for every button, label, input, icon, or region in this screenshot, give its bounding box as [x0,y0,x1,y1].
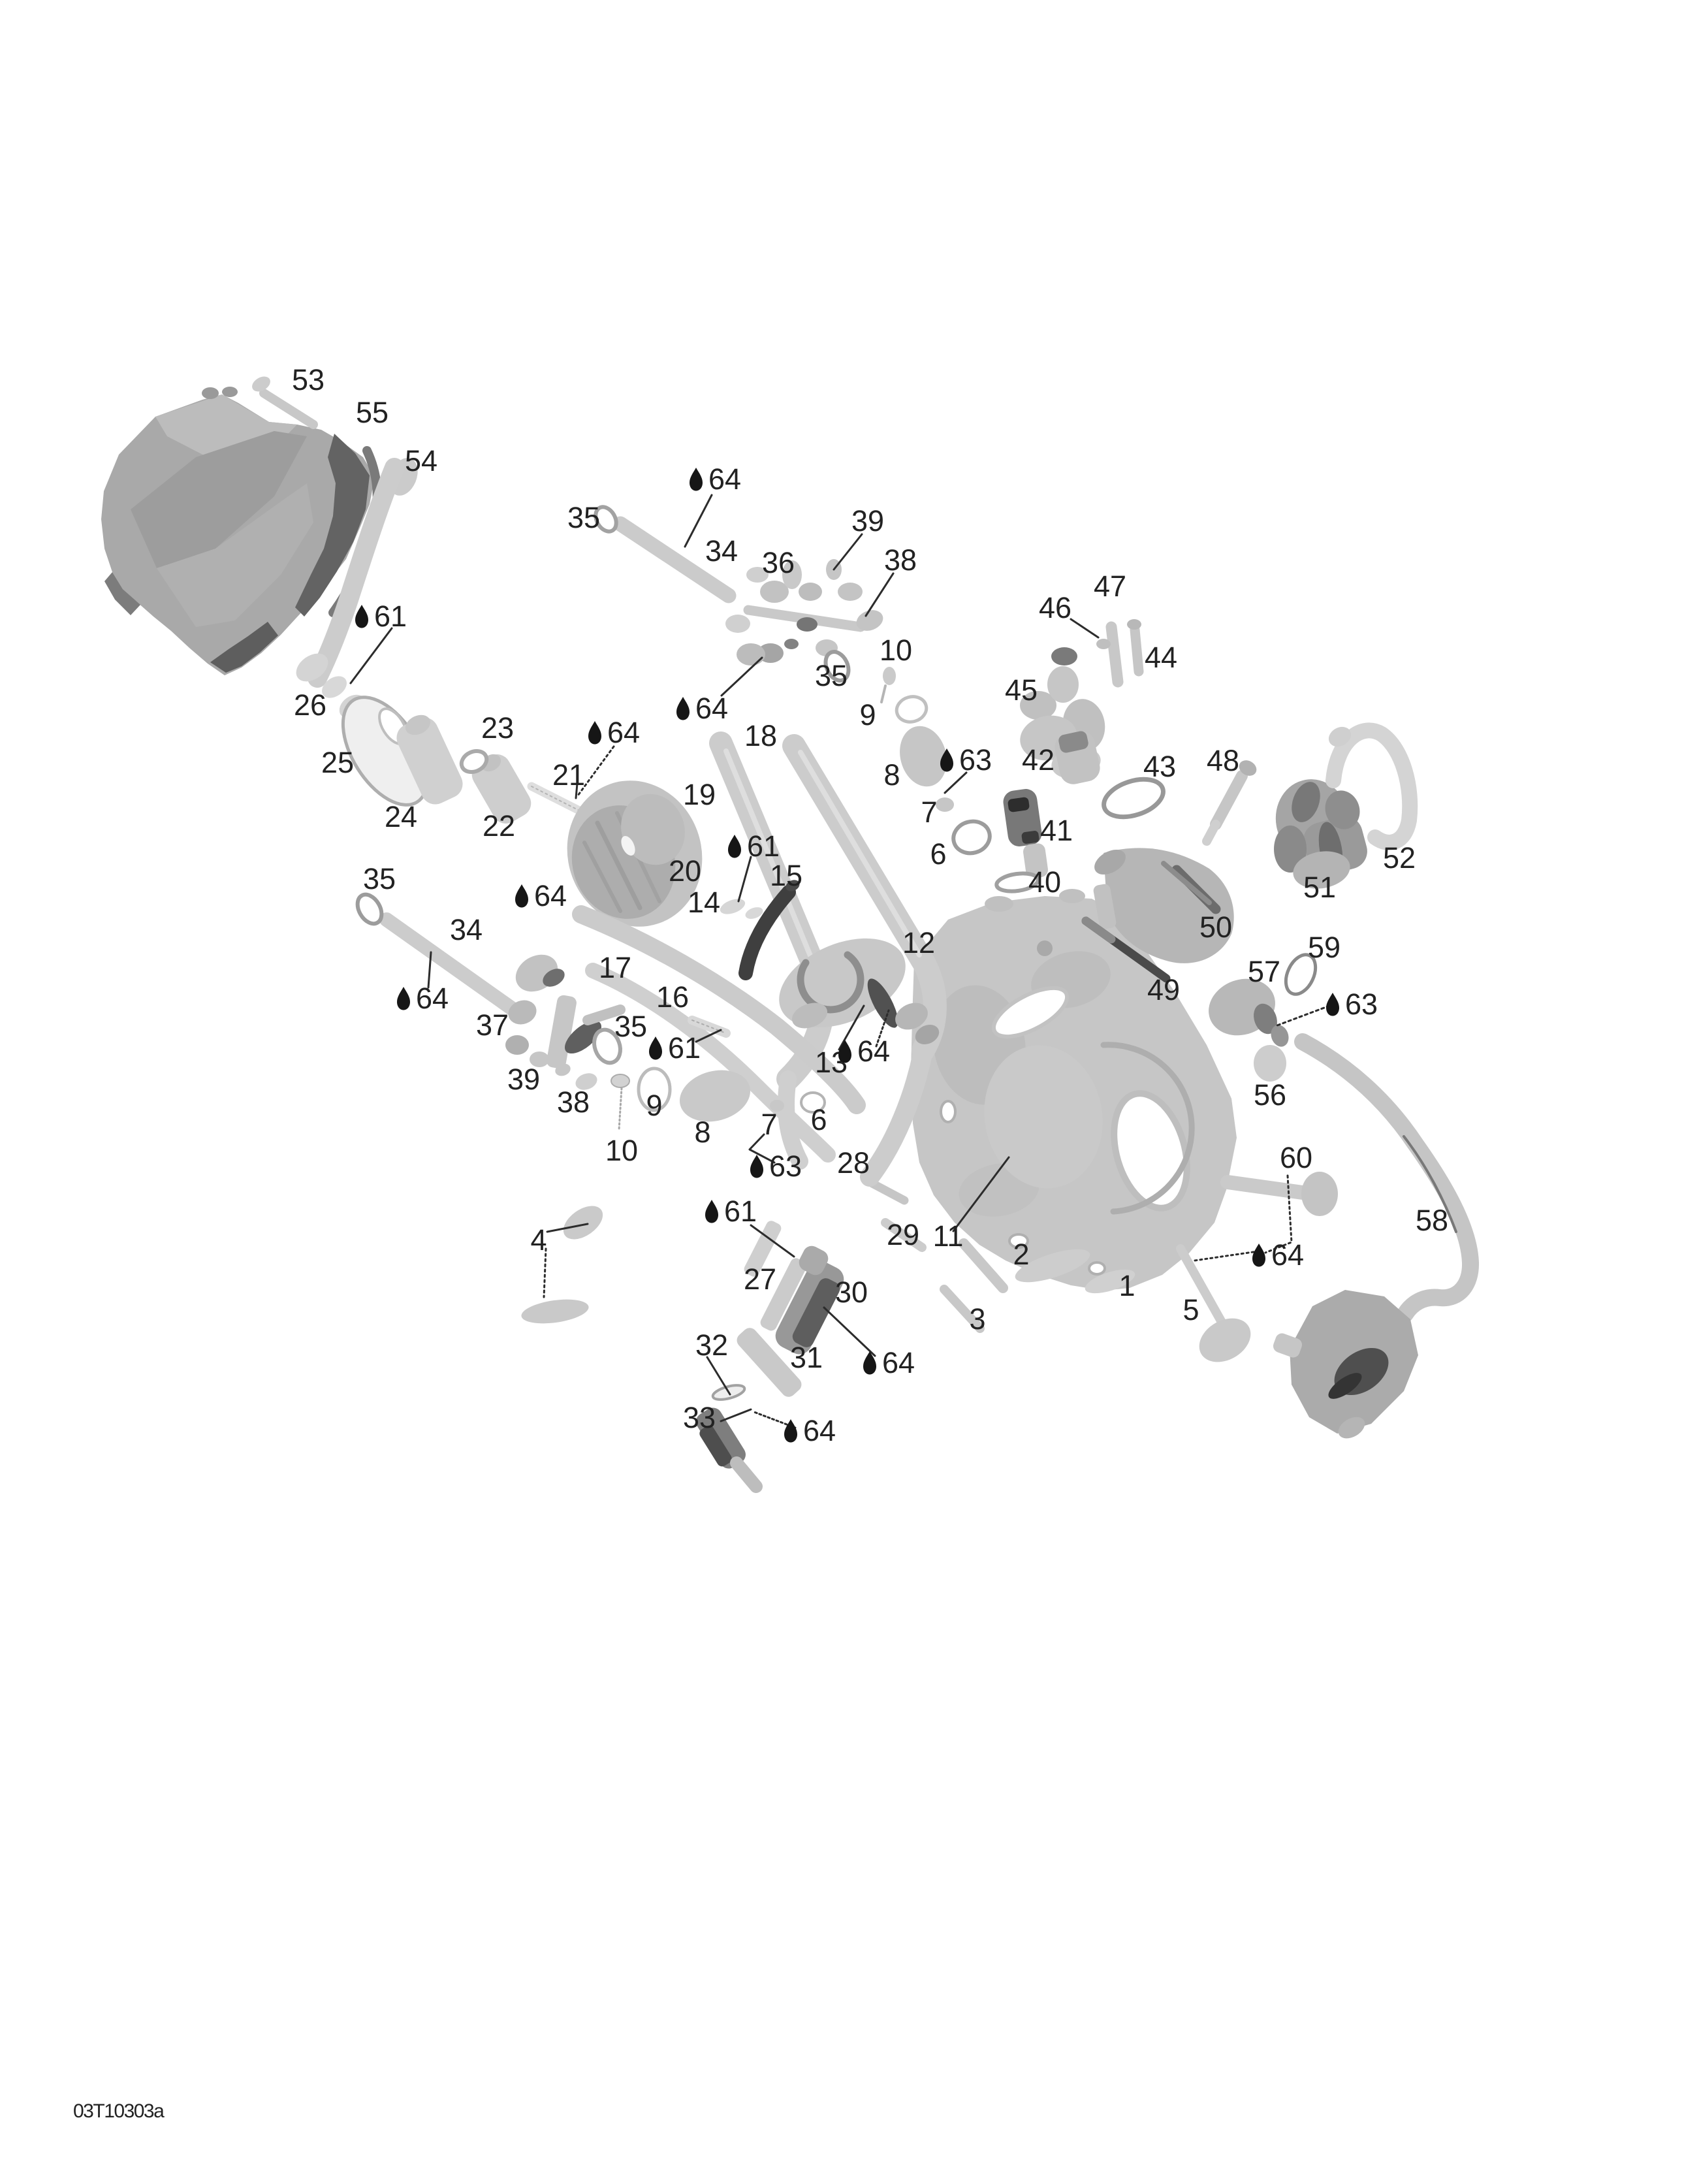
svg-text:30: 30 [835,1276,868,1309]
svg-text:43: 43 [1143,750,1176,783]
svg-text:64: 64 [534,879,567,912]
svg-text:36: 36 [762,546,795,579]
svg-text:63: 63 [959,743,992,777]
svg-text:55: 55 [356,396,389,429]
svg-text:17: 17 [599,951,631,984]
svg-text:2: 2 [1013,1238,1029,1271]
svg-text:53: 53 [292,363,325,396]
svg-text:33: 33 [683,1401,716,1434]
svg-text:41: 41 [1040,814,1073,847]
svg-text:3: 3 [969,1302,985,1336]
svg-text:64: 64 [882,1346,915,1379]
svg-text:60: 60 [1280,1141,1312,1174]
svg-text:58: 58 [1416,1204,1448,1237]
svg-text:61: 61 [374,600,407,633]
svg-text:8: 8 [883,758,900,792]
svg-text:7: 7 [761,1108,777,1141]
svg-text:51: 51 [1303,871,1336,904]
svg-text:64: 64 [607,716,640,749]
svg-text:32: 32 [695,1328,728,1362]
svg-text:39: 39 [851,504,884,538]
svg-text:34: 34 [705,534,738,568]
svg-text:46: 46 [1039,591,1071,624]
svg-text:22: 22 [483,809,515,843]
svg-text:23: 23 [481,711,514,745]
svg-text:34: 34 [450,913,483,946]
svg-text:15: 15 [770,859,802,892]
svg-text:57: 57 [1248,955,1280,988]
svg-text:40: 40 [1028,865,1061,899]
svg-text:31: 31 [790,1341,823,1374]
svg-text:20: 20 [669,854,701,888]
svg-text:56: 56 [1254,1078,1286,1112]
svg-text:63: 63 [1345,988,1378,1021]
svg-text:21: 21 [552,758,585,792]
svg-text:50: 50 [1199,910,1232,944]
svg-text:61: 61 [724,1195,757,1228]
svg-text:59: 59 [1308,931,1341,964]
svg-text:9: 9 [646,1089,662,1122]
svg-text:64: 64 [1271,1238,1304,1272]
svg-text:6: 6 [810,1103,827,1136]
svg-text:64: 64 [803,1414,836,1447]
svg-text:19: 19 [683,778,716,811]
svg-text:39: 39 [507,1063,540,1096]
svg-text:10: 10 [605,1134,638,1167]
svg-text:64: 64 [857,1035,890,1068]
svg-text:26: 26 [294,688,326,722]
svg-text:38: 38 [884,543,917,577]
svg-text:35: 35 [815,659,848,692]
svg-text:63: 63 [769,1149,802,1183]
svg-text:11: 11 [933,1219,964,1253]
svg-text:18: 18 [744,719,777,752]
svg-text:35: 35 [567,501,600,534]
svg-text:49: 49 [1147,973,1180,1006]
svg-text:4: 4 [530,1223,547,1257]
svg-text:38: 38 [557,1085,590,1119]
svg-text:47: 47 [1094,570,1126,603]
svg-text:45: 45 [1005,673,1038,707]
svg-text:24: 24 [385,800,417,833]
svg-text:5: 5 [1182,1293,1199,1326]
svg-text:61: 61 [668,1031,701,1065]
svg-text:03T10303a: 03T10303a [73,2100,165,2122]
svg-text:35: 35 [614,1010,647,1043]
svg-text:6: 6 [930,837,946,871]
svg-text:9: 9 [859,698,876,731]
svg-text:64: 64 [695,692,728,725]
svg-text:35: 35 [363,862,396,895]
svg-text:64: 64 [416,982,449,1015]
svg-text:1: 1 [1119,1269,1135,1302]
svg-text:48: 48 [1207,744,1239,777]
svg-text:52: 52 [1383,841,1416,875]
svg-text:42: 42 [1022,743,1055,777]
svg-text:25: 25 [321,746,354,779]
svg-text:29: 29 [887,1218,919,1251]
svg-text:8: 8 [694,1116,710,1149]
svg-text:10: 10 [880,634,912,667]
svg-text:44: 44 [1145,641,1177,674]
svg-text:7: 7 [921,795,937,829]
svg-text:54: 54 [405,444,437,477]
svg-text:14: 14 [688,886,720,919]
svg-text:27: 27 [744,1262,776,1296]
svg-text:28: 28 [837,1146,870,1180]
svg-text:12: 12 [902,926,935,959]
svg-text:61: 61 [747,829,780,863]
svg-text:16: 16 [656,980,689,1014]
svg-text:64: 64 [708,462,741,496]
svg-text:37: 37 [476,1008,509,1042]
